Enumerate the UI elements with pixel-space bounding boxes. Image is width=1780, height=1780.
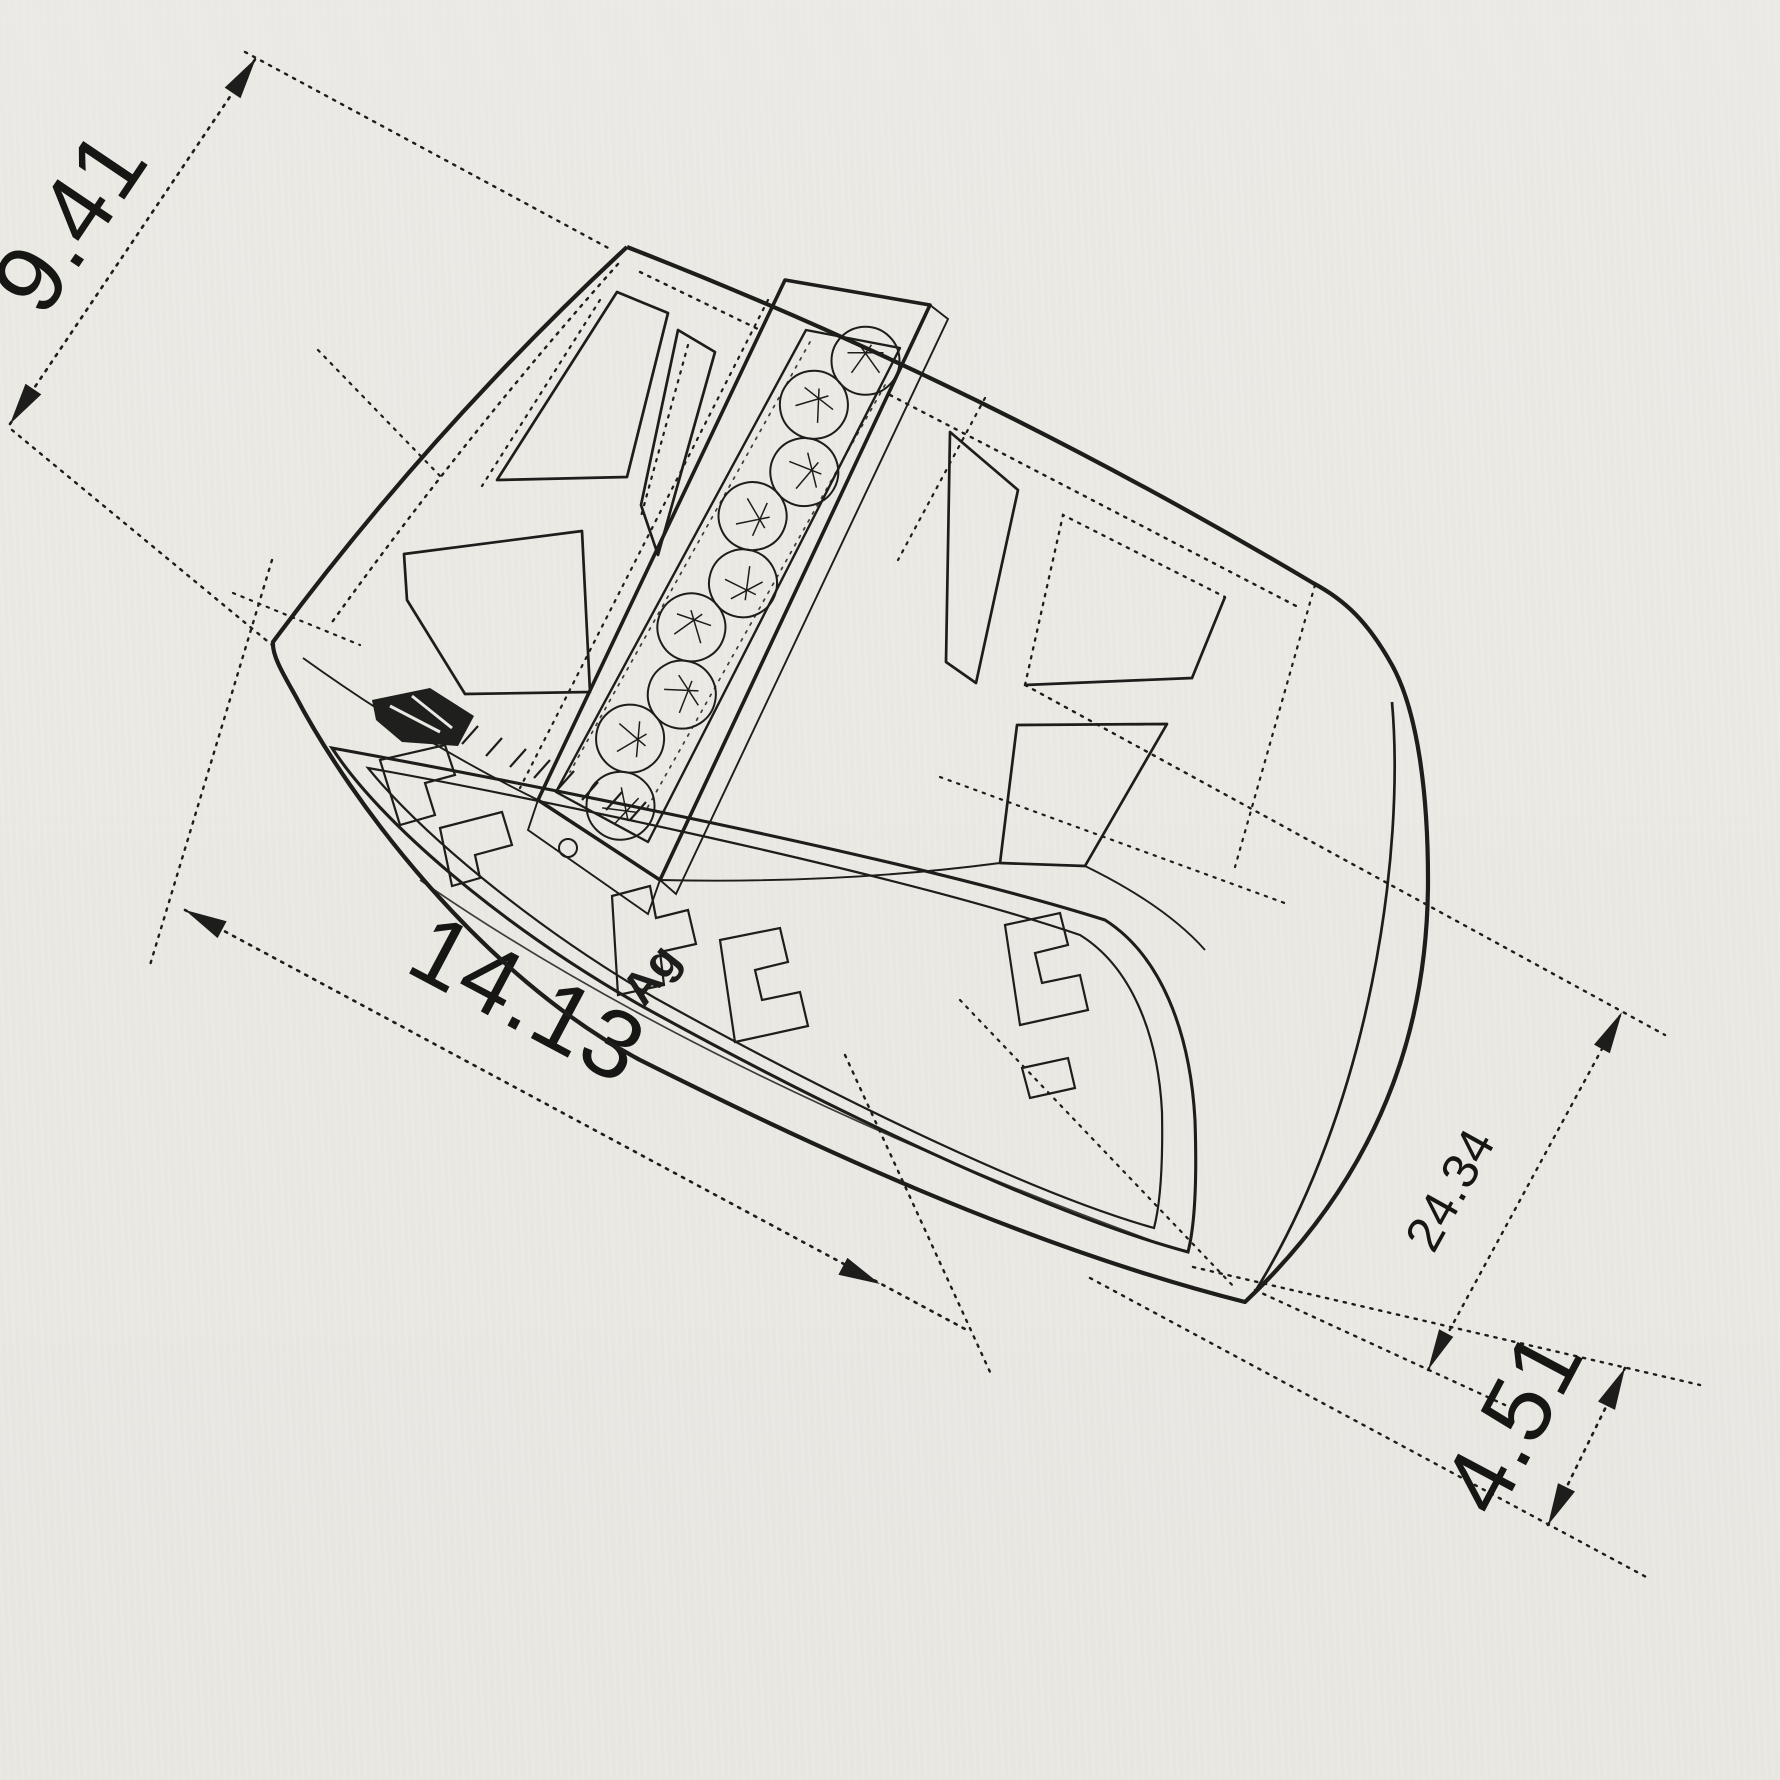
drawing-sheet: 9.41 14.13 24.34 4.51 — [0, 0, 1780, 1780]
ring-technical-drawing: 9.41 14.13 24.34 4.51 — [0, 0, 1780, 1780]
